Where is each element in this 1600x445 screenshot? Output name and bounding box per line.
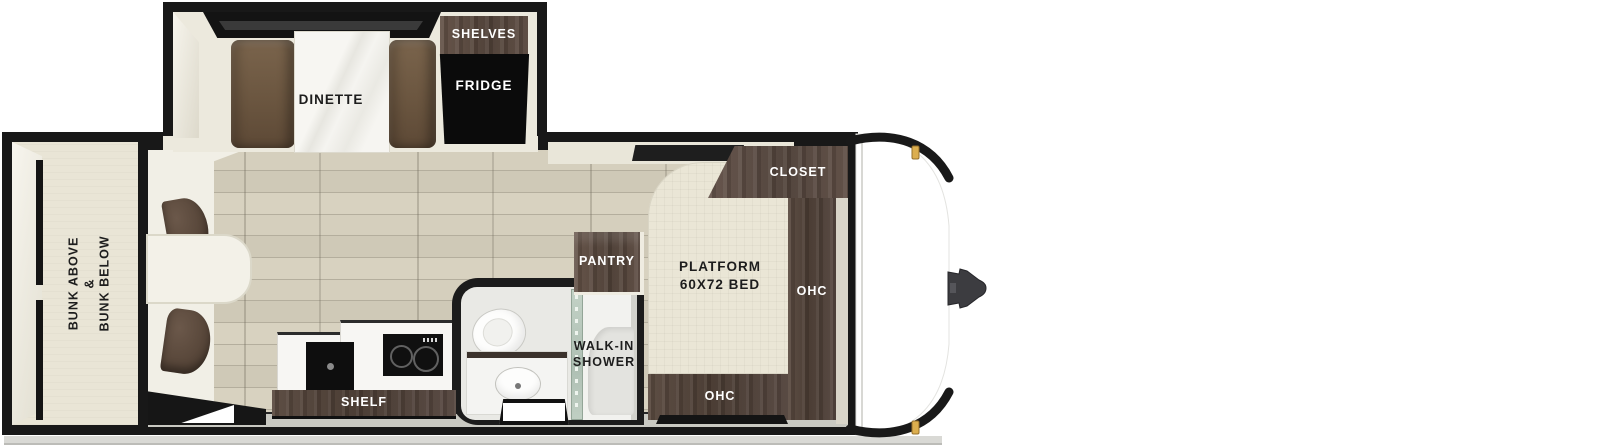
front-cap xyxy=(840,120,1010,445)
walk-in-shower-label-line1: WALK-IN xyxy=(565,339,643,355)
bunk-label-line1: BUNK ABOVE xyxy=(67,235,83,331)
pantry-cabinet: PANTRY xyxy=(574,232,644,295)
dinette-window-glass xyxy=(219,21,423,30)
shelves-cabinet: SHELVES xyxy=(440,16,528,54)
shelf-bar: SHELF xyxy=(272,390,456,416)
ohc-label: OHC xyxy=(788,284,836,300)
bunk-bed-frame xyxy=(148,236,250,302)
fridge-label: FRIDGE xyxy=(438,78,530,95)
toilet-seat xyxy=(479,314,516,350)
ohc-bed-foot: OHC xyxy=(648,374,792,420)
bunk-room: BUNK ABOVE & BUNK BELOW xyxy=(12,142,138,425)
walk-in-shower-label: WALK-IN SHOWER xyxy=(565,339,643,370)
pantry-label: PANTRY xyxy=(579,254,635,270)
floorplan-canvas: BUNK ABOVE & BUNK BELOW xyxy=(0,0,1600,445)
shelf-label: SHELF xyxy=(341,395,387,411)
kitchen-sink xyxy=(306,342,354,390)
bed-label-line1: PLATFORM xyxy=(648,258,792,276)
marker-light xyxy=(912,421,919,434)
burner-icon xyxy=(390,345,413,368)
cooktop xyxy=(383,334,443,376)
dinette-seat xyxy=(389,40,436,148)
dinette-label: DINETTE xyxy=(271,92,391,109)
slideout-wall xyxy=(163,2,173,136)
entry-door-swing xyxy=(178,405,234,423)
bath-mat xyxy=(499,399,569,425)
ohc-label: OHC xyxy=(705,389,736,405)
closet-label: CLOSET xyxy=(754,165,842,181)
bed-label-line2: 60X72 BED xyxy=(648,276,792,294)
bedroom-window xyxy=(632,145,744,161)
ground-shadow xyxy=(4,436,942,445)
slideout-interior: DINETTE SHELVES FRIDGE xyxy=(173,12,537,152)
fridge: FRIDGE xyxy=(438,54,530,144)
bunk-label-line2: & xyxy=(82,235,98,331)
dinette-slideout: DINETTE SHELVES FRIDGE xyxy=(163,2,547,152)
hitch-latch xyxy=(950,283,956,293)
cooktop-controls xyxy=(423,338,438,342)
trailer-main-body: BUNK ABOVE & BUNK BELOW xyxy=(2,132,858,435)
ohc-bed-side: OHC xyxy=(788,198,836,420)
bedroom-window xyxy=(656,415,788,424)
marker-light xyxy=(912,146,919,159)
slideout-wall xyxy=(163,2,547,12)
bed-label: PLATFORM 60X72 BED xyxy=(648,258,792,293)
front-cap-shell xyxy=(856,134,949,436)
sink-drain xyxy=(327,363,334,370)
sink-drain xyxy=(515,383,521,389)
slideout-wall xyxy=(537,2,547,136)
shelves-label: SHELVES xyxy=(452,27,516,43)
walk-in-shower-label-line2: SHOWER xyxy=(565,355,643,371)
bunk-label-line3: BUNK BELOW xyxy=(98,235,114,331)
bunk-label: BUNK ABOVE & BUNK BELOW xyxy=(42,142,138,425)
bathroom-sink xyxy=(495,367,541,401)
slideout-side-wall xyxy=(173,12,199,138)
bathroom: WALK-IN SHOWER xyxy=(452,278,644,425)
bathroom-floor: WALK-IN SHOWER xyxy=(461,287,636,420)
burner-icon xyxy=(413,346,439,372)
